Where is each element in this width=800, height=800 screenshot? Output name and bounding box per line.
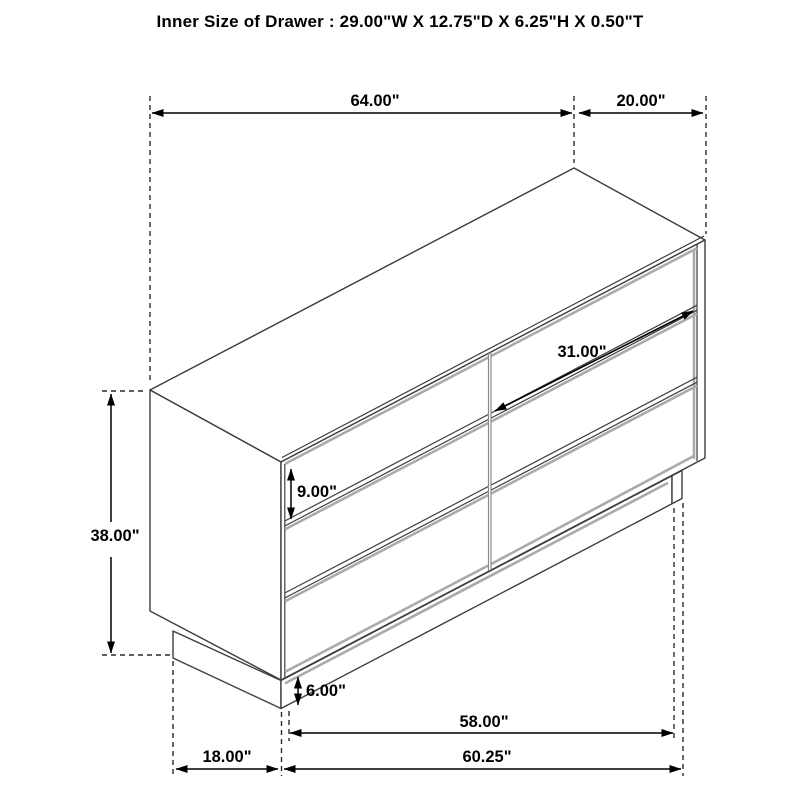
dresser-dimension-diagram: 64.00" 20.00" 38.00" 31.00" 9.00" <box>0 0 800 800</box>
diagram-canvas: Inner Size of Drawer : 29.00"W X 12.75"D… <box>0 0 800 800</box>
dim-label-overall-height: 38.00" <box>90 527 139 545</box>
dim-label-top-depth: 20.00" <box>616 92 665 110</box>
dim-label-floor-width: 60.25" <box>462 748 511 766</box>
dim-label-top-width: 64.00" <box>350 92 399 110</box>
dim-label-base-height: 6.00" <box>306 682 346 700</box>
dimension-base-height: 6.00" <box>298 677 346 705</box>
dim-label-base-width: 58.00" <box>459 713 508 731</box>
dim-label-drawer-height: 9.00" <box>297 483 337 501</box>
dim-label-base-depth: 18.00" <box>202 748 251 766</box>
dimension-top-depth: 20.00" <box>579 92 703 113</box>
dresser-drawing <box>150 168 705 709</box>
base-right-leg <box>672 471 682 504</box>
dim-label-drawer-width: 31.00" <box>557 343 606 361</box>
